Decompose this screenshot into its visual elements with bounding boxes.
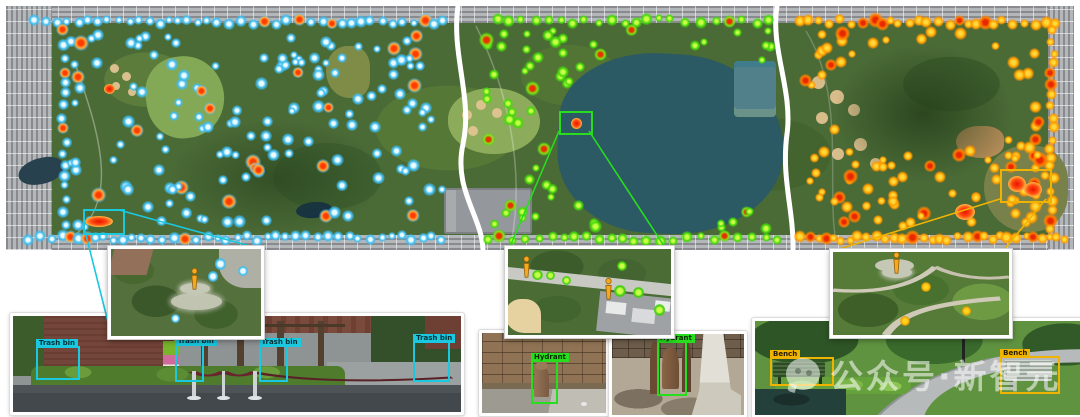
heat-dot bbox=[614, 285, 626, 297]
heat-dot bbox=[546, 271, 556, 281]
hydrant-photo-1: Hydrant bbox=[479, 330, 609, 416]
heat-dot bbox=[900, 316, 910, 326]
figure: Trash binTrash binTrash binTrash bin Hyd… bbox=[0, 0, 1080, 417]
heat-dot bbox=[633, 287, 644, 298]
pegman-marker bbox=[189, 268, 200, 294]
central-park-satellite-map bbox=[6, 6, 1074, 250]
pegman-marker bbox=[891, 252, 902, 278]
hydrant-closeup-inset bbox=[505, 246, 674, 338]
detection-label: Trash bin bbox=[259, 338, 301, 347]
detection-box: Trash bin bbox=[36, 346, 80, 381]
heat-dot bbox=[215, 258, 227, 270]
detection-box: Hydrant bbox=[531, 360, 558, 404]
detection-label: Bench bbox=[770, 350, 800, 359]
heat-dot bbox=[532, 270, 543, 281]
highlight-rect bbox=[1000, 169, 1052, 203]
detection-label: Hydrant bbox=[531, 353, 569, 362]
detection-box: Trash bin bbox=[175, 344, 204, 382]
detection-box: Bench bbox=[1000, 356, 1060, 394]
pegman-marker bbox=[603, 278, 614, 304]
heat-dot bbox=[208, 271, 219, 282]
detection-label: Trash bin bbox=[36, 339, 78, 348]
heat-dot bbox=[921, 282, 931, 292]
highlight-rect bbox=[83, 209, 125, 235]
highlight-rect bbox=[559, 111, 593, 135]
heat-dot bbox=[654, 304, 665, 315]
detection-box: Trash bin bbox=[259, 345, 288, 382]
heat-dot bbox=[617, 261, 627, 271]
detection-box: Trash bin bbox=[413, 341, 450, 382]
heat-dot bbox=[962, 306, 971, 315]
pegman-marker bbox=[521, 256, 532, 282]
heat-dot bbox=[171, 314, 180, 323]
trash-bin-closeup-inset bbox=[108, 246, 264, 339]
highlight-rects bbox=[6, 6, 1074, 250]
heat-dot bbox=[562, 276, 571, 285]
detection-label: Bench bbox=[1000, 349, 1030, 358]
heat-dot bbox=[238, 266, 248, 276]
detection-box: Hydrant bbox=[657, 341, 687, 396]
bench-closeup-inset bbox=[830, 249, 1012, 338]
detection-box: Bench bbox=[770, 357, 834, 386]
hydrant-photo-2: Hydrant bbox=[609, 331, 747, 417]
detection-label: Trash bin bbox=[413, 334, 455, 343]
